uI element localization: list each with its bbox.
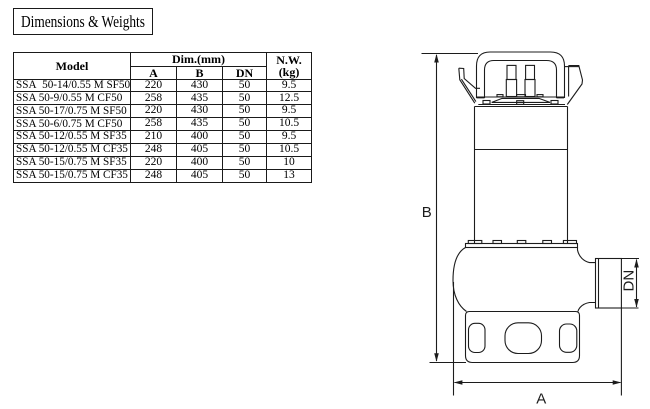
svg-text:DN: DN bbox=[621, 270, 638, 292]
svg-text:B: B bbox=[422, 204, 432, 221]
svg-text:A: A bbox=[536, 391, 546, 408]
